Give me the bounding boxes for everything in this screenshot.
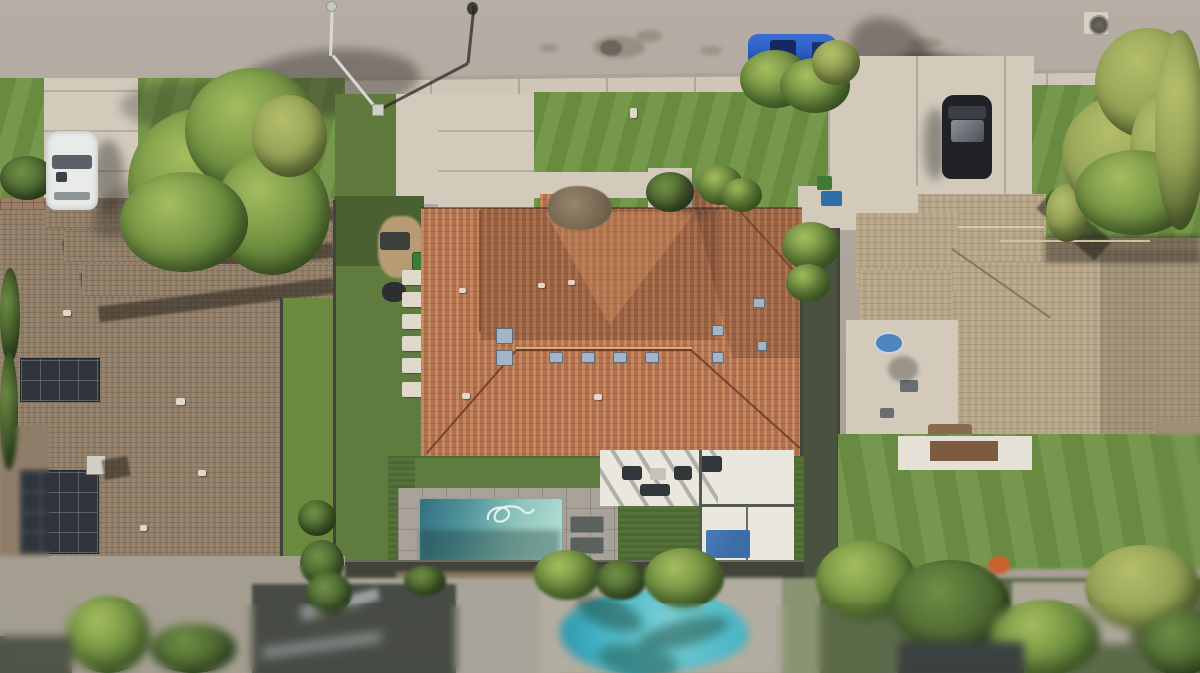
ridge-vent: [549, 352, 563, 363]
roof-hip-line: [479, 210, 481, 332]
white-car-rear-glass: [54, 192, 90, 200]
blue-tarp: [706, 530, 750, 558]
roof-vent: [198, 470, 206, 476]
lawn-marker: [630, 108, 637, 118]
ridge-vent: [581, 352, 595, 363]
roof-vent: [459, 288, 466, 293]
slab-divider: [702, 504, 794, 507]
ridge-vent: [645, 352, 659, 363]
black-car-windshield: [948, 106, 986, 119]
street-stain: [540, 44, 558, 52]
street-lamp-base: [372, 104, 384, 116]
fence-overhang-tree: [786, 264, 830, 302]
street-lamp-head: [326, 1, 337, 12]
green-trash-bin: [817, 176, 832, 190]
front-yard-tree: [722, 178, 762, 212]
black-car-roof-shine: [951, 120, 984, 142]
side-yard-concrete: [396, 94, 442, 204]
parkway-tree: [812, 40, 860, 85]
street-stain: [700, 46, 722, 55]
pool-shade: [420, 530, 560, 563]
roof-vent: [568, 280, 575, 285]
pool-hose: [482, 500, 538, 530]
white-car-sunroof: [56, 172, 67, 182]
large-tree-left: [252, 95, 327, 177]
white-car-windshield: [52, 155, 92, 169]
right-hip-line: [1000, 240, 1150, 242]
roof-ridge-line: [516, 349, 692, 351]
street-stain: [600, 40, 622, 56]
roof-vent-blue: [757, 341, 767, 351]
backyard-turf-light: [415, 458, 605, 490]
fence-overhang-tree: [782, 222, 840, 270]
sun-lounger: [570, 516, 604, 533]
large-tree-right: [1155, 30, 1200, 230]
roof-vent: [462, 393, 470, 399]
ridge-vent: [613, 352, 627, 363]
courtyard-furniture: [880, 408, 894, 418]
roof-vent: [176, 398, 185, 405]
fence: [280, 298, 283, 562]
side-hedge: [298, 500, 336, 536]
patio-chair: [622, 466, 642, 480]
roof-vent-blue: [712, 352, 724, 363]
roof-vent-blue: [712, 325, 724, 336]
roof-vent: [594, 394, 602, 400]
dried-shrub: [548, 186, 612, 230]
roof-skylight: [496, 328, 513, 344]
courtyard-firepit: [888, 356, 918, 382]
patio-sofa: [640, 484, 670, 496]
right-pergola-roof: [930, 441, 998, 461]
manhole-lid: [1089, 15, 1109, 35]
solar-panel-array: [20, 358, 100, 402]
tilt-shift-blur: [1155, 420, 1200, 580]
patio-equipment: [700, 456, 722, 472]
patio-chair: [674, 466, 692, 480]
tilt-shift-blur: [0, 565, 1200, 603]
roof-vent: [140, 525, 147, 531]
patio-table: [650, 468, 666, 480]
tilt-shift-blur: [0, 425, 50, 575]
tilt-shift-blur: [0, 603, 1200, 673]
roof-vent: [538, 283, 545, 288]
left-edge-hedge: [0, 268, 20, 363]
roof-vent: [63, 310, 71, 316]
roof-vent-blue: [753, 298, 765, 308]
storage-bins: [380, 232, 410, 250]
roof-skylight: [496, 350, 513, 366]
street-stain: [636, 30, 662, 42]
kiddie-pool: [874, 332, 904, 354]
blue-trash-bin: [821, 191, 842, 206]
aerial-photo: [0, 0, 1200, 673]
large-tree-left: [120, 172, 248, 272]
lamp-head-shadow: [467, 2, 478, 15]
